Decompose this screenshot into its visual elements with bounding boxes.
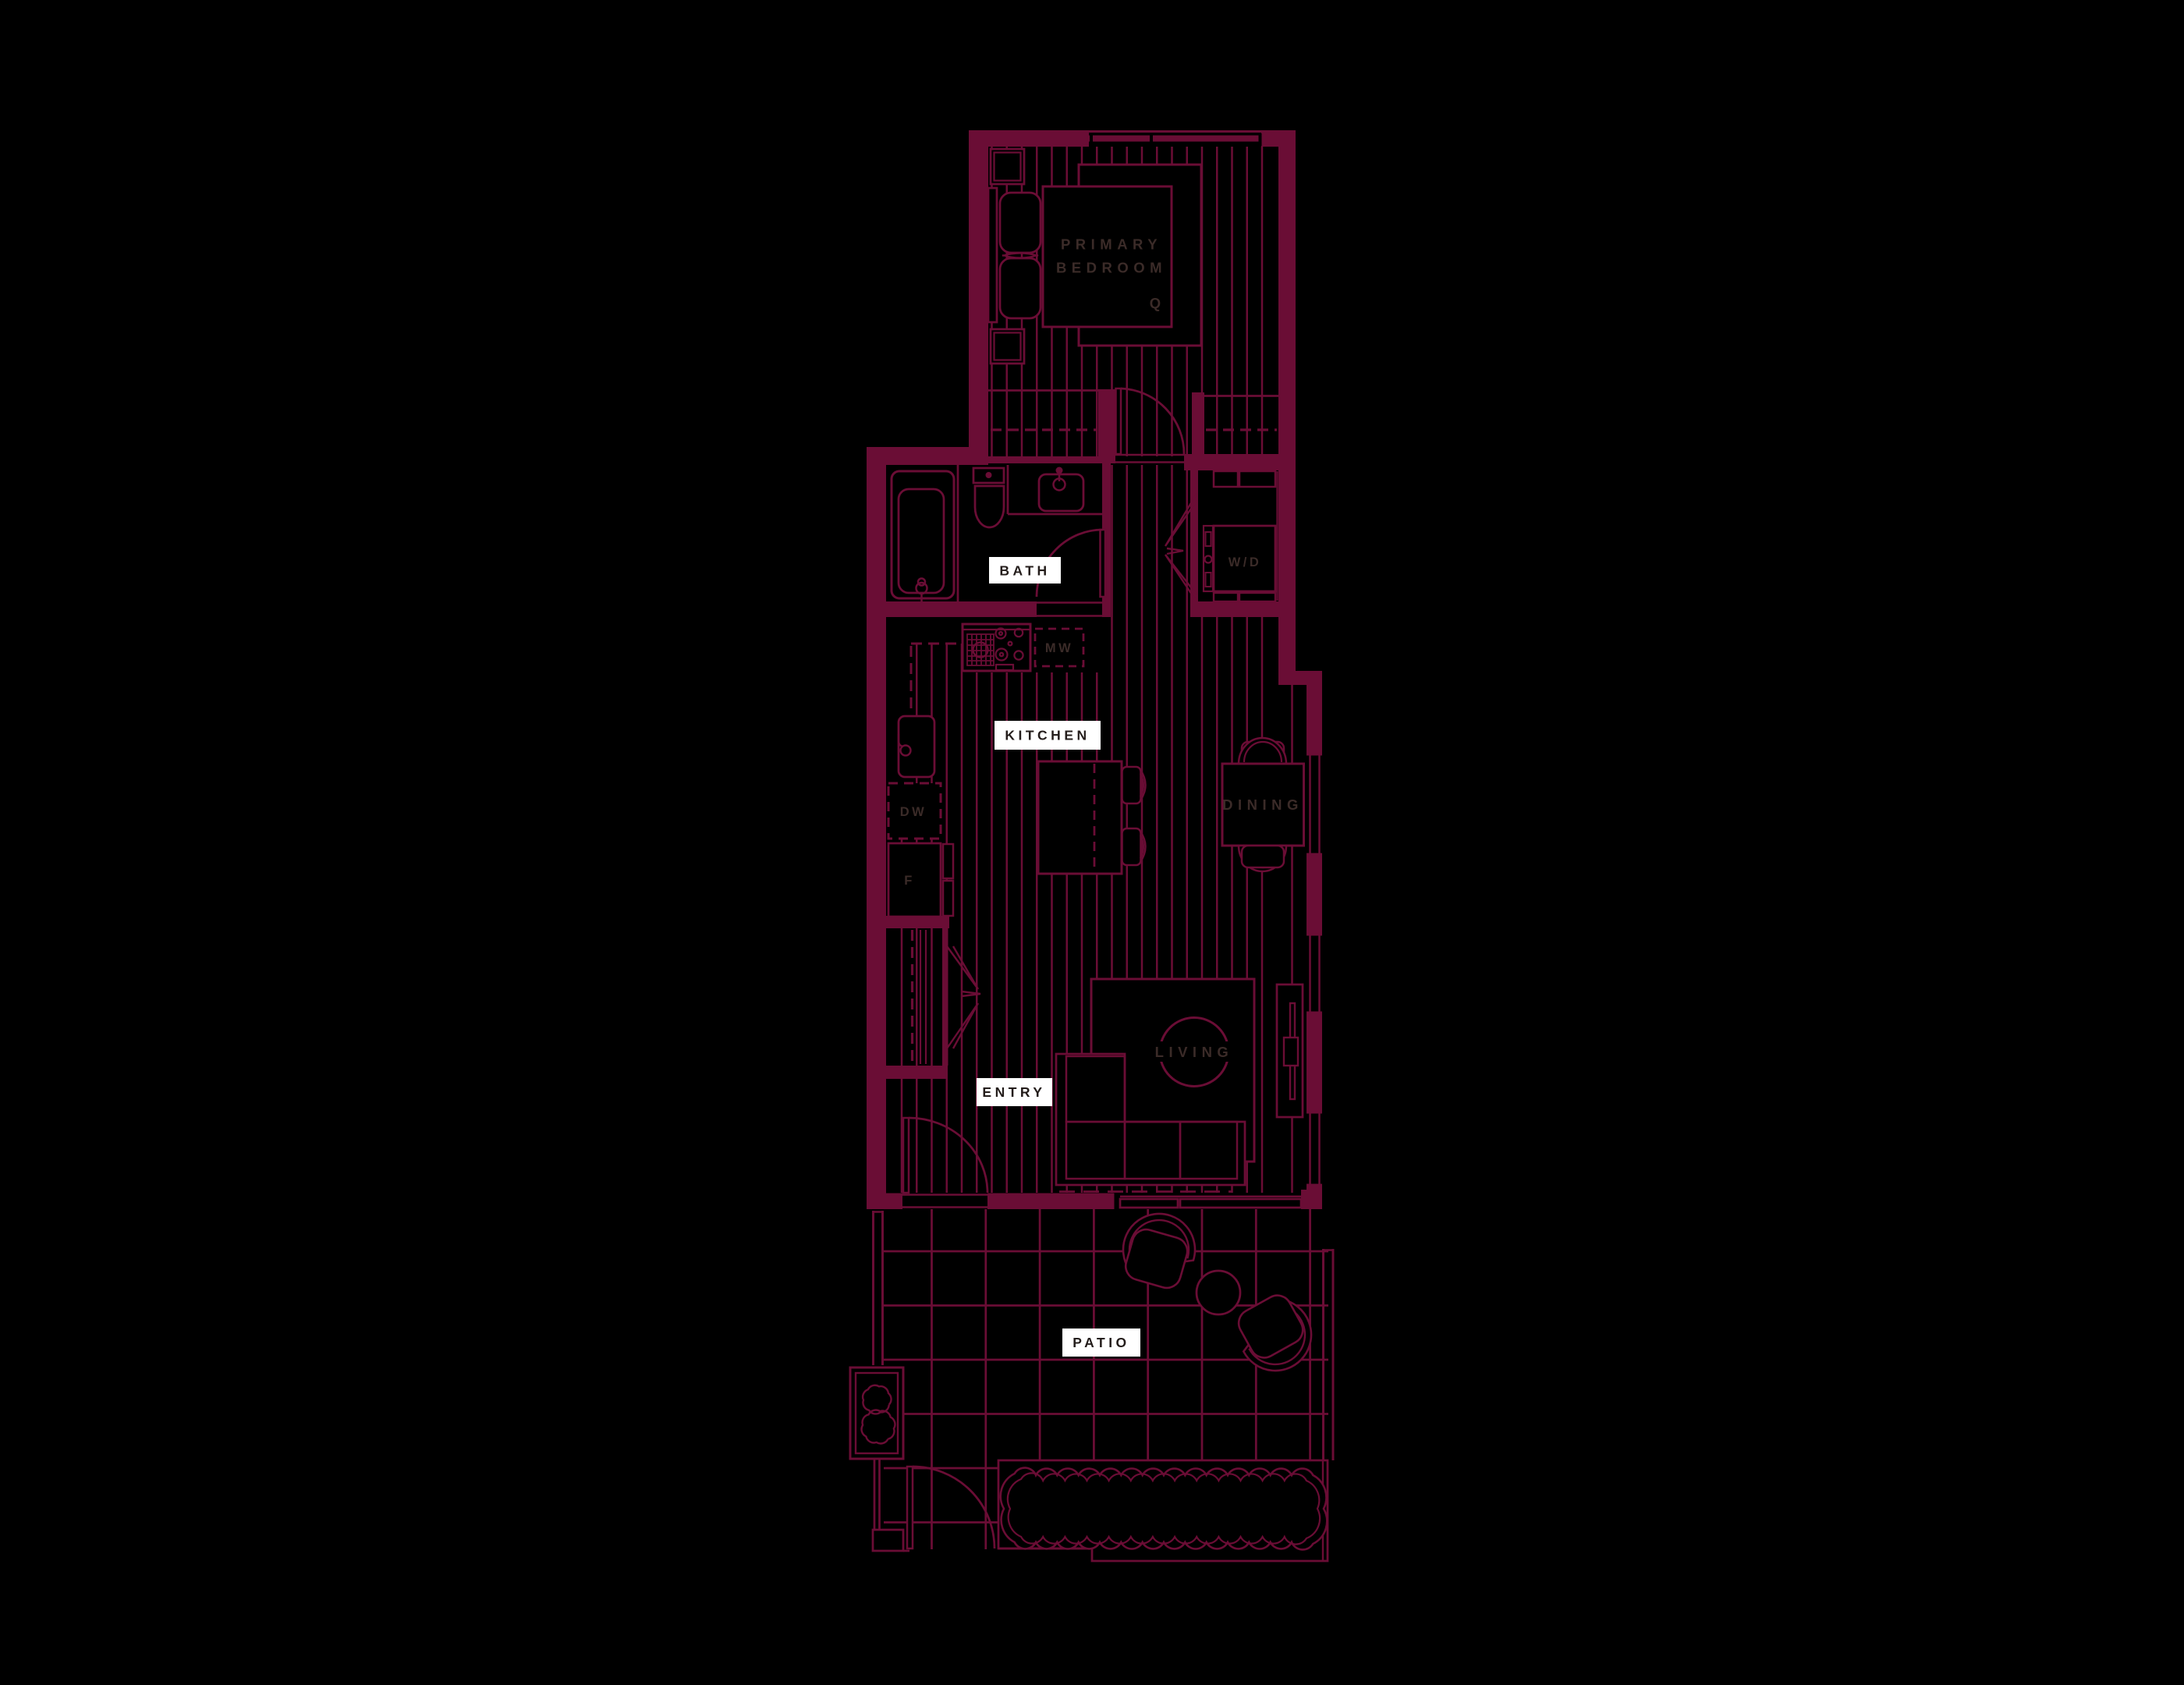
svg-text:Q: Q bbox=[1150, 295, 1161, 311]
svg-text:W/D: W/D bbox=[1228, 555, 1262, 569]
svg-text:F: F bbox=[904, 874, 915, 888]
svg-text:ENTRY: ENTRY bbox=[982, 1084, 1045, 1100]
svg-text:PATIO: PATIO bbox=[1072, 1335, 1129, 1350]
svg-text:BATH: BATH bbox=[999, 563, 1050, 579]
svg-text:DINING: DINING bbox=[1222, 796, 1303, 813]
svg-text:PRIMARY: PRIMARY bbox=[1061, 236, 1162, 253]
svg-text:KITCHEN: KITCHEN bbox=[1005, 728, 1090, 743]
svg-text:LIVING: LIVING bbox=[1155, 1044, 1234, 1060]
svg-text:MW: MW bbox=[1045, 641, 1073, 655]
svg-text:BEDROOM: BEDROOM bbox=[1056, 260, 1167, 276]
svg-text:DW: DW bbox=[900, 805, 927, 819]
